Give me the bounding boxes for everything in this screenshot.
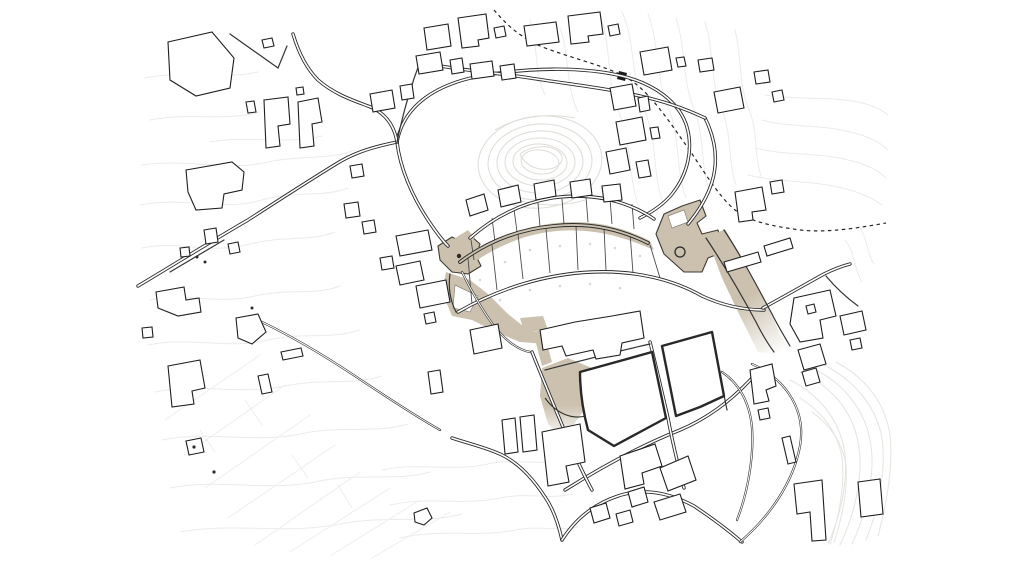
layer-roads xyxy=(170,34,858,410)
layer-parcels xyxy=(165,355,450,558)
site-plan-figure xyxy=(0,0,1024,576)
layer-fan-radials xyxy=(468,197,660,304)
layer-contours-dense xyxy=(790,362,891,545)
site-plan-svg xyxy=(0,0,1024,576)
